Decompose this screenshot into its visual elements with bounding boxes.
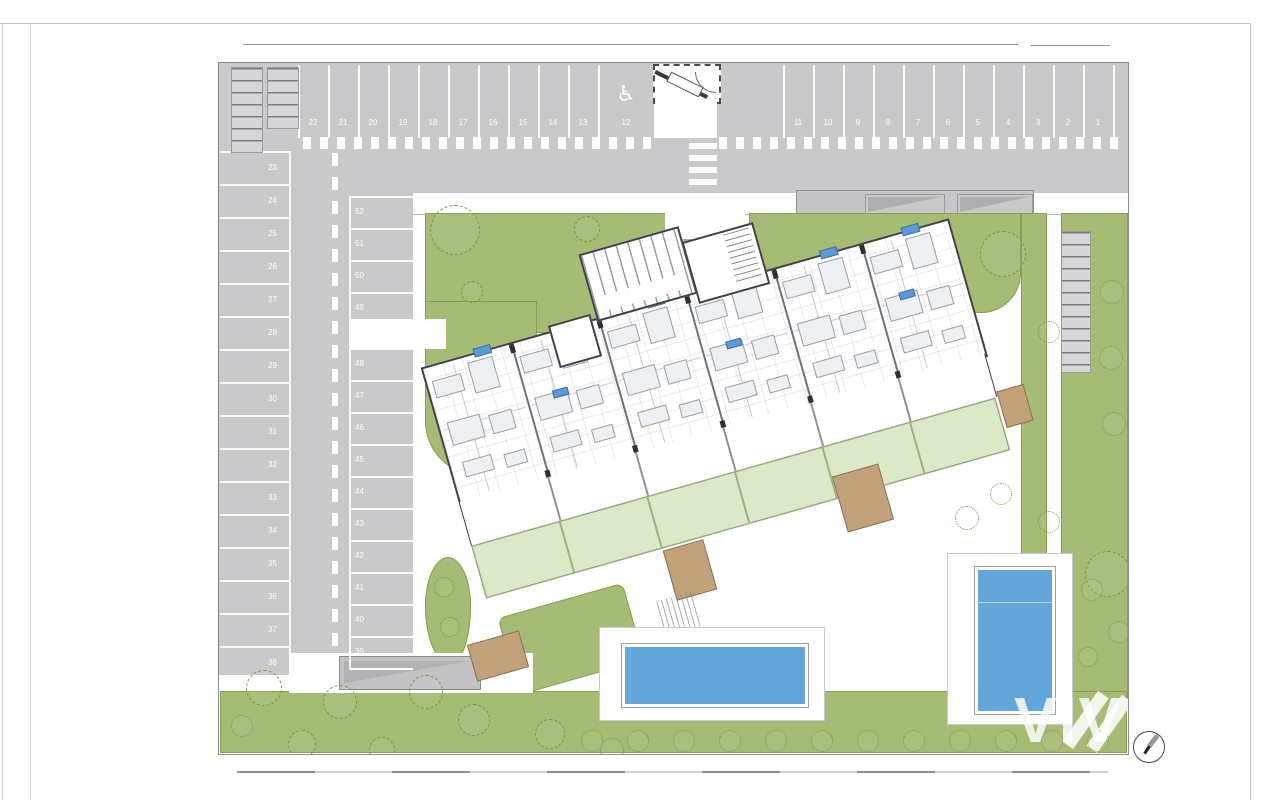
- sheet-left-border-outer: [2, 23, 3, 800]
- road-centerline-dashed: [332, 153, 338, 693]
- stall-divider: [448, 65, 450, 138]
- stall-divider: [349, 228, 413, 230]
- stall-divider: [1083, 65, 1085, 138]
- terrace-divider: [898, 378, 912, 422]
- scale-bar: [237, 771, 1108, 773]
- stall-divider: [220, 250, 290, 252]
- parking-stall-number-9: 9: [843, 119, 873, 127]
- stall-divider: [349, 348, 413, 350]
- clock-cursor-icon: [1133, 731, 1165, 763]
- bush-icon: [857, 730, 879, 752]
- parking-stall-number-26: 26: [257, 263, 277, 271]
- furniture: [678, 399, 703, 418]
- site-plan-sheet: 2221201918171615141312♿11109876543212324…: [0, 0, 1280, 800]
- header-rule-left: [243, 44, 1018, 45]
- bike-rack-right: [1061, 231, 1091, 373]
- stall-divider: [220, 514, 290, 516]
- garden-divider: [559, 521, 575, 574]
- bush-icon: [673, 730, 695, 752]
- stall-divider: [1053, 65, 1055, 138]
- furniture: [549, 429, 582, 453]
- bush-icon: [1099, 346, 1123, 370]
- bush-icon: [1100, 280, 1124, 304]
- stall-edge-line: [349, 196, 351, 668]
- stall-divider: [478, 65, 480, 138]
- entrance-path: [655, 102, 717, 138]
- tree-icon: [246, 670, 282, 706]
- stall-divider: [873, 65, 875, 138]
- parking-asphalt-left: [219, 193, 413, 675]
- furniture: [467, 356, 501, 394]
- stall-divider: [993, 65, 995, 138]
- stall-tick-row-right: [719, 137, 1121, 149]
- sheet-top-border: [0, 23, 1251, 24]
- stall-divider: [963, 65, 965, 138]
- parking-stall-number-41: 41: [355, 584, 375, 592]
- bush-icon: [719, 730, 741, 752]
- stall-divider: [349, 260, 413, 262]
- stall-divider: [220, 481, 290, 483]
- terrace-divider: [547, 477, 561, 521]
- pool-lane-line: [978, 602, 1052, 603]
- entrance-gate-structure: [653, 64, 721, 104]
- wall-tick: [509, 344, 516, 354]
- furniture: [905, 232, 939, 270]
- parking-stall-number-28: 28: [257, 329, 277, 337]
- stall-divider: [349, 196, 413, 198]
- bush-icon: [434, 577, 454, 597]
- ramp-slope-icon: [344, 661, 469, 683]
- parking-stall-number-11: 11: [783, 119, 813, 127]
- bush-icon: [1078, 647, 1098, 667]
- parking-stall-number-8: 8: [873, 119, 903, 127]
- furniture: [519, 348, 553, 373]
- stall-divider: [220, 547, 290, 549]
- bush-icon: [1038, 511, 1060, 533]
- parking-stall-number-17: 17: [448, 119, 478, 127]
- scale-bar-segment: [547, 771, 625, 773]
- parking-stall-number-4: 4: [993, 119, 1023, 127]
- parking-stall-number-45: 45: [355, 456, 375, 464]
- stall-divider: [349, 668, 413, 670]
- site-plan-drawing: 2221201918171615141312♿11109876543212324…: [218, 62, 1129, 755]
- parking-stall-number-32: 32: [257, 461, 277, 469]
- watermark-text: VIV: [1014, 688, 1123, 752]
- furniture: [576, 384, 605, 410]
- stall-divider: [328, 65, 330, 138]
- tree-icon: [535, 719, 565, 749]
- bush-icon: [811, 730, 833, 752]
- bush-icon: [903, 730, 925, 752]
- stall-divider: [349, 324, 413, 326]
- stall-divider: [783, 65, 785, 138]
- scale-bar-segment: [702, 771, 780, 773]
- parking-stall-number-3: 3: [1023, 119, 1053, 127]
- stall-divider: [349, 604, 413, 606]
- stall-divider: [220, 349, 290, 351]
- parking-stall-number-7: 7: [903, 119, 933, 127]
- furniture: [488, 409, 517, 435]
- scale-bar-segment: [237, 771, 315, 773]
- parking-stall-number-18: 18: [418, 119, 448, 127]
- stall-divider: [349, 292, 413, 294]
- tree-icon: [323, 685, 357, 719]
- bush-icon: [949, 730, 971, 752]
- parking-stall-number-38: 38: [257, 659, 277, 667]
- furniture: [642, 306, 676, 344]
- parking-stall-number-33: 33: [257, 494, 277, 502]
- scale-bar-segment: [1012, 771, 1090, 773]
- stall-divider: [220, 448, 290, 450]
- furniture: [812, 355, 845, 379]
- parking-stall-number-40: 40: [355, 616, 375, 624]
- stall-divider: [418, 65, 420, 138]
- furniture: [622, 364, 661, 396]
- scale-bar-segment: [857, 771, 935, 773]
- stall-divider: [349, 476, 413, 478]
- furniture: [447, 413, 486, 445]
- parking-stall-number-34: 34: [257, 527, 277, 535]
- furniture: [926, 285, 955, 311]
- stall-divider: [508, 65, 510, 138]
- parking-stall-number-6: 6: [933, 119, 963, 127]
- furniture: [751, 334, 780, 360]
- bike-rack-top-1: [231, 67, 263, 153]
- parking-stall-number-10: 10: [813, 119, 843, 127]
- stall-divider: [220, 316, 290, 318]
- parking-stall-number-47: 47: [355, 392, 375, 400]
- stall-divider: [349, 636, 413, 638]
- garden-divider: [734, 471, 750, 524]
- stall-divider: [1113, 65, 1115, 138]
- parking-stall-number-19: 19: [388, 119, 418, 127]
- parking-stall-number-51: 51: [355, 240, 375, 248]
- parking-stall-number-15: 15: [508, 119, 538, 127]
- parking-stall-number-36: 36: [257, 593, 277, 601]
- parking-stall-number-48: 48: [355, 360, 375, 368]
- header-rule-right: [1030, 45, 1110, 46]
- stall-divider: [349, 412, 413, 414]
- parking-stall-number-16: 16: [478, 119, 508, 127]
- parking-stall-number-49: 49: [355, 304, 375, 312]
- stall-divider: [1023, 65, 1025, 138]
- furniture: [432, 373, 466, 398]
- stall-divider: [349, 572, 413, 574]
- terrace-divider: [722, 427, 736, 471]
- tree-icon: [409, 675, 443, 709]
- parking-stall-number-22: 22: [298, 119, 328, 127]
- parking-stall-number-1: 1: [1083, 119, 1113, 127]
- sheet-left-border-inner: [30, 23, 31, 800]
- clock-hand-short: [1143, 745, 1150, 754]
- stall-divider: [220, 217, 290, 219]
- bush-icon: [955, 506, 979, 530]
- stall-divider: [220, 283, 290, 285]
- parking-stall-number-27: 27: [257, 296, 277, 304]
- bush-icon: [1081, 579, 1103, 601]
- stall-divider: [538, 65, 540, 138]
- stall-divider: [220, 382, 290, 384]
- tree-icon: [574, 216, 600, 242]
- parking-stall-number-39: 39: [355, 648, 375, 656]
- furniture: [591, 424, 616, 443]
- parking-stall-number-20: 20: [358, 119, 388, 127]
- stall-divider: [568, 65, 570, 138]
- bush-icon: [1102, 412, 1126, 436]
- parking-stall-number-30: 30: [257, 395, 277, 403]
- terrace-divider: [635, 452, 649, 496]
- bush-icon: [231, 715, 253, 737]
- parking-stall-number-29: 29: [257, 362, 277, 370]
- stall-divider: [349, 444, 413, 446]
- bush-icon: [765, 730, 787, 752]
- furniture: [870, 249, 904, 274]
- ramp-slope-icon: [960, 197, 1028, 212]
- bush-icon: [1038, 321, 1060, 343]
- terrace-divider: [810, 403, 824, 447]
- furniture: [782, 274, 816, 299]
- stall-divider: [220, 415, 290, 417]
- bush-icon: [440, 617, 460, 637]
- bush-icon: [600, 738, 624, 755]
- furniture: [900, 330, 933, 354]
- garage-ramp-2: [957, 194, 1033, 215]
- furniture: [941, 325, 966, 344]
- stall-divider: [220, 646, 290, 648]
- stall-divider: [813, 65, 815, 138]
- wall-tick: [771, 269, 778, 279]
- accessible-stall-number: 12: [598, 119, 654, 127]
- furniture: [854, 349, 879, 368]
- furniture: [817, 257, 851, 295]
- stall-divider: [220, 184, 290, 186]
- furniture: [766, 374, 791, 393]
- parking-stall-number-13: 13: [568, 119, 598, 127]
- garage-ramp-1: [865, 194, 945, 215]
- parking-stall-number-43: 43: [355, 520, 375, 528]
- parking-stall-number-42: 42: [355, 552, 375, 560]
- parking-stall-number-37: 37: [257, 626, 277, 634]
- scale-bar-segment: [392, 771, 470, 773]
- parking-stall-number-25: 25: [257, 230, 277, 238]
- bike-rack-top-2: [267, 67, 299, 129]
- garden-divider: [646, 496, 662, 549]
- furniture: [607, 323, 641, 348]
- stall-divider: [349, 380, 413, 382]
- parking-stall-number-46: 46: [355, 424, 375, 432]
- tree-icon: [430, 205, 480, 255]
- stall-divider: [220, 580, 290, 582]
- stall-divider: [358, 65, 360, 138]
- parking-stall-number-5: 5: [963, 119, 993, 127]
- stall-divider: [903, 65, 905, 138]
- parking-stall-number-35: 35: [257, 560, 277, 568]
- parking-stall-number-50: 50: [355, 272, 375, 280]
- sheet-right-border: [1250, 23, 1251, 800]
- parking-stall-number-24: 24: [257, 197, 277, 205]
- parking-stall-number-31: 31: [257, 428, 277, 436]
- garden-divider: [821, 446, 837, 499]
- stall-divider: [388, 65, 390, 138]
- furniture: [725, 380, 758, 404]
- bush-icon: [1108, 621, 1129, 643]
- parking-stall-number-21: 21: [328, 119, 358, 127]
- stall-divider: [349, 540, 413, 542]
- furniture: [838, 310, 867, 336]
- parking-stall-number-14: 14: [538, 119, 568, 127]
- tree-icon: [458, 704, 490, 736]
- tree-icon: [288, 730, 316, 755]
- parking-stall-number-44: 44: [355, 488, 375, 496]
- stall-divider: [349, 508, 413, 510]
- crosswalk-zebra: [689, 143, 717, 191]
- stall-divider: [220, 613, 290, 615]
- garden-divider: [909, 421, 925, 474]
- stall-tick-row-left: [303, 137, 653, 149]
- bush-icon: [990, 483, 1012, 505]
- parking-stall-number-2: 2: [1053, 119, 1083, 127]
- ramp-slope-icon: [868, 197, 940, 212]
- stall-divider: [843, 65, 845, 138]
- furniture: [503, 448, 528, 467]
- tree-icon: [980, 231, 1026, 277]
- swimming-pool-main: [622, 644, 808, 707]
- furniture: [637, 404, 670, 428]
- parking-stall-number-52: 52: [355, 208, 375, 216]
- stall-divider: [933, 65, 935, 138]
- wheelchair-icon: ♿: [598, 81, 654, 107]
- furniture: [797, 314, 836, 346]
- parking-stall-number-23: 23: [257, 164, 277, 172]
- furniture: [663, 359, 692, 385]
- tree-icon: [461, 281, 483, 303]
- bush-icon: [627, 730, 649, 752]
- furniture: [462, 454, 495, 478]
- bush-icon: [581, 730, 603, 752]
- wall-tick: [859, 244, 866, 254]
